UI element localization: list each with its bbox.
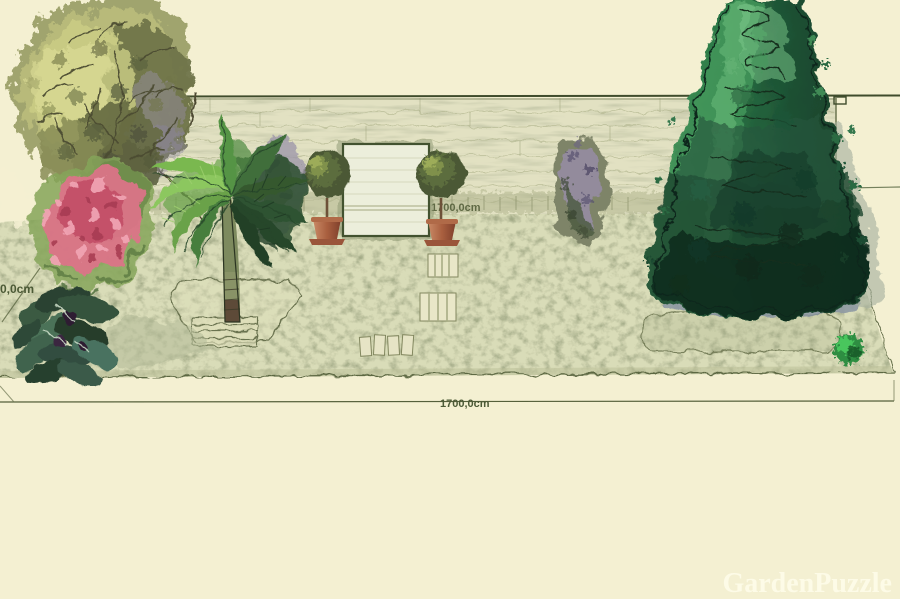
svg-text:1700,0cm: 1700,0cm xyxy=(440,398,490,410)
svg-text:0,0cm: 0,0cm xyxy=(0,282,34,296)
svg-text:GardenPuzzle: GardenPuzzle xyxy=(722,568,892,599)
svg-text:1700,0cm: 1700,0cm xyxy=(431,202,481,214)
